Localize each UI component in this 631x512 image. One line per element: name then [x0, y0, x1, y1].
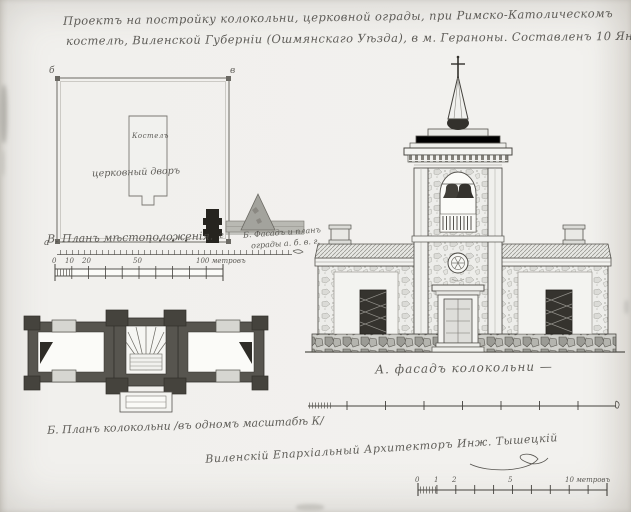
entrance-door — [432, 285, 484, 352]
window-opening — [216, 320, 240, 332]
tower-pylon — [106, 310, 128, 326]
left-chimney — [329, 225, 351, 244]
fence-corner-mark — [226, 76, 231, 81]
bell-tower — [404, 56, 512, 352]
floor-plan-drawing — [24, 310, 268, 412]
door-pediment — [432, 285, 484, 291]
scale-end-flourish — [615, 401, 619, 408]
corner-pylon — [252, 376, 268, 390]
facade-scale-label: 2 — [452, 476, 456, 484]
fence-corner-mark — [226, 239, 231, 244]
scan-artifact — [296, 504, 324, 511]
scan-artifact — [0, 150, 4, 176]
fence-corner-mark — [55, 76, 60, 81]
site-plan-corner-label: б — [49, 66, 55, 76]
window-opening — [52, 320, 76, 332]
church-label: Костелъ — [132, 132, 169, 140]
tower-string-course — [412, 236, 504, 242]
site-scale-label: 0 — [52, 257, 56, 265]
cross-finial — [451, 56, 465, 78]
facade-scale-label: 10 метровъ — [565, 476, 610, 484]
left-wing — [315, 225, 417, 334]
church-footprint — [129, 116, 167, 205]
facade-scale-label: 1 — [434, 476, 438, 484]
facade-scale-bar — [418, 483, 607, 496]
left-wing-gate-window — [360, 290, 386, 334]
left-wing-roof — [315, 244, 417, 258]
facade-scale-label: 5 — [508, 476, 512, 484]
right-room — [188, 332, 254, 372]
left-room — [38, 332, 104, 372]
site-plan-corner-label: г — [219, 231, 224, 241]
facade-scale-line — [308, 401, 619, 410]
tower-cap — [416, 129, 500, 143]
door-steps — [436, 343, 480, 347]
corner-pylon — [24, 316, 40, 330]
site-plan-corner-label: в — [230, 66, 235, 76]
right-wing-gate-window — [546, 290, 572, 334]
site-scale-label: 50 — [133, 257, 142, 265]
spire — [448, 76, 468, 119]
belfry — [440, 172, 476, 232]
window-opening — [216, 370, 240, 382]
right-wing — [499, 225, 611, 334]
site-scale-bar — [55, 250, 303, 281]
tower-cornice — [404, 143, 512, 165]
elevation-drawing — [305, 56, 625, 352]
scanned-drawing-sheet: Проектъ на постройку колокольни, церковн… — [0, 0, 631, 512]
corner-pylon — [252, 316, 268, 330]
site-scale-label: 10 — [65, 257, 74, 265]
site-plan-drawing — [55, 76, 231, 244]
window-opening — [52, 370, 76, 382]
facade-scale-label: 0 — [415, 476, 419, 484]
tower-pylon — [164, 310, 186, 326]
right-chimney — [563, 225, 585, 244]
site-scale-label: 100 метровъ — [196, 257, 246, 265]
right-wing-roof — [499, 244, 611, 258]
scan-artifact — [0, 85, 7, 143]
signature-flourish — [470, 454, 548, 470]
fence-pillar-elevation — [241, 194, 275, 230]
corner-pylon — [24, 376, 40, 390]
porch — [120, 392, 172, 412]
scan-artifact — [624, 300, 630, 314]
scale-end-flourish — [293, 250, 303, 254]
site-scale-label: 20 — [82, 257, 91, 265]
